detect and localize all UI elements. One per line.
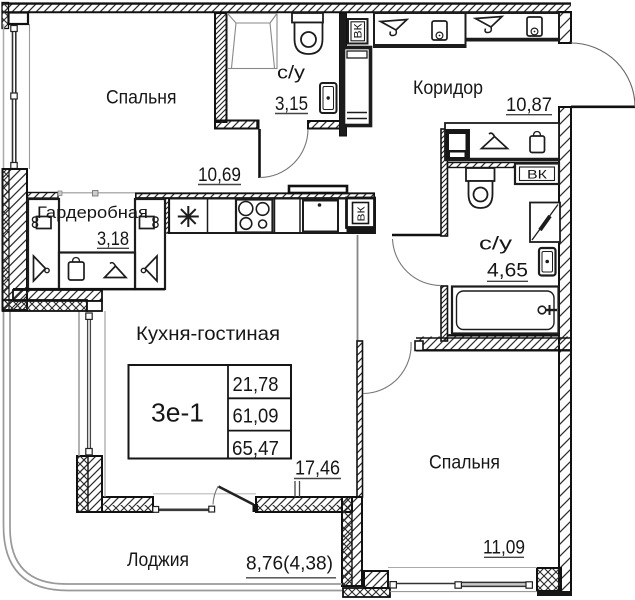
svg-text:8,76(4,38): 8,76(4,38) xyxy=(246,553,333,575)
svg-text:Лоджия: Лоджия xyxy=(127,550,189,571)
svg-text:ВК: ВК xyxy=(353,23,365,39)
svg-text:65,47: 65,47 xyxy=(232,437,279,460)
svg-text:3,18: 3,18 xyxy=(97,228,129,250)
svg-text:Кухня-гостиная: Кухня-гостиная xyxy=(136,324,280,345)
svg-text:17,46: 17,46 xyxy=(295,458,340,480)
svg-text:10,87: 10,87 xyxy=(506,94,552,116)
svg-text:с/у: с/у xyxy=(479,233,513,254)
svg-text:61,09: 61,09 xyxy=(233,405,279,428)
svg-text:ВК: ВК xyxy=(527,170,547,182)
svg-text:3,15: 3,15 xyxy=(275,93,308,115)
svg-text:Гардеробная: Гардеробная xyxy=(37,203,148,222)
svg-text:Спальня: Спальня xyxy=(429,453,500,474)
svg-text:21,78: 21,78 xyxy=(233,373,279,396)
svg-text:11,09: 11,09 xyxy=(483,537,525,559)
svg-text:4,65: 4,65 xyxy=(487,260,528,282)
svg-text:10,69: 10,69 xyxy=(198,164,241,186)
svg-text:ВК: ВК xyxy=(356,205,368,221)
svg-text:с/у: с/у xyxy=(277,62,306,83)
svg-text:Спальня: Спальня xyxy=(106,88,177,109)
svg-text:3е-1: 3е-1 xyxy=(151,400,204,428)
svg-text:Коридор: Коридор xyxy=(413,78,483,99)
